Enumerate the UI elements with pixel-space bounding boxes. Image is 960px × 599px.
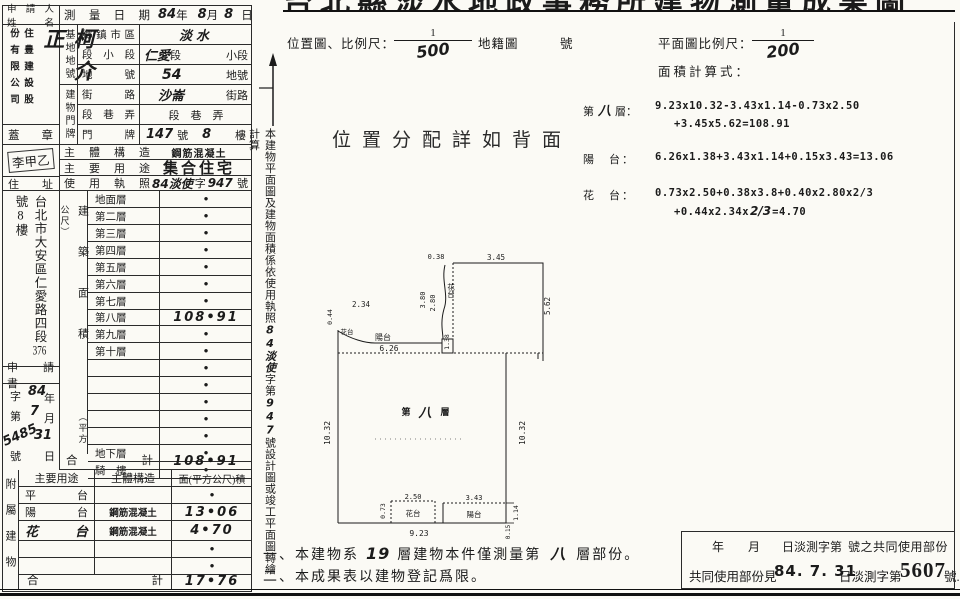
site-lot-unit: 地號 [226,67,248,83]
applicant-label-line1: 申請人 [7,1,54,15]
annex-total-row: 合 計 17•76 [19,574,252,589]
site-row1-label: 鄉鎮市區 [78,25,140,45]
door-row1-label-text: 街 路 [82,87,135,102]
survey-year: 84 [158,7,176,22]
annex-structure: 鋼筋混凝土 [95,521,172,540]
door-row3-label: 門 牌 [78,125,140,145]
floor-label-pre: 第 [401,406,410,418]
formula3-name: 花 台： [583,187,635,203]
floor-value: • [160,360,252,376]
site-section-unit: 段 [170,47,181,63]
annex-total-label: 合 計 [19,574,172,589]
survey-date-row: 測量日期 84 年 8 月 8 日 [60,5,252,25]
floor-total-label: 合 計 [60,454,160,469]
floor-area-strip: 建築面積 （平方公尺） [60,191,88,454]
application-doc-grid: 字 84 年 第 7 月 5485 31 號 日 [2,384,60,470]
dim-923: 9.23 [409,529,428,538]
dim-626: 6.26 [379,344,398,353]
formula1-pre: 第 [583,103,594,119]
license-row: 使用執照 84淡使 字 947 號 [60,176,252,191]
formula2-name: 陽 台： [583,151,635,167]
dim-038: 0.38 [428,253,445,261]
common-doc-number-unit: 號. [944,566,960,585]
site-subsection-unit: 小段 [226,47,248,63]
cadastral-map-label: 地籍圖 [478,33,519,52]
license-label: 使用執照 [64,175,150,191]
side-note-column: 本建物平面圖及建物面積係依使用執照84淡使字第947號設計圖或竣工平面圖轉繪計算 [253,128,270,580]
doc-no-word: 第 [10,408,21,424]
annex-use: 陽 台 [25,504,88,520]
seal-stamp-cell: 李甲乙 [2,145,60,176]
side-note-pre: 本建物平面圖及建物面積係依使用執照 [264,128,276,324]
common-month-label: 月 [748,538,760,555]
dim-015: 0.15 [505,524,512,539]
plan-scale-label: 平面圖比例尺： [658,33,753,52]
doc-word: 字 [10,388,21,404]
survey-day-unit: 日 [241,7,253,23]
annex-row: • [19,558,252,575]
note1-post: 層部份。 [576,544,640,564]
formula3-fraction-hw: 2/3 [750,204,771,218]
floor-label: 第十層 [88,343,160,359]
note-line2: 二、本成果表以建物登記爲限。 [263,566,487,586]
dim-073: 0.73 [379,503,387,519]
sheet-right-border [954,22,955,589]
floor-row: 第十層• [88,343,252,360]
annex-area: 4•70 [172,521,252,540]
dim-280: 2.80 [429,295,437,312]
dim-1032-right: 10.32 [518,421,527,445]
formula1-floor-hw: 八 [598,100,611,119]
floor-row: 第六層• [88,276,252,293]
formula3-line2-pre: +0.44x2.34x [674,206,749,218]
address-mid: 號 [14,195,28,209]
door-number-unit: 號 [177,127,188,143]
address-post: 樓 [14,224,28,238]
floor-value: • [160,326,252,342]
street-unit: 街路 [226,87,248,103]
annex-header-area-text: 面(平方公尺)積 [179,471,246,486]
flower-bed-label-bottom: 花台 [406,508,421,518]
doc-month-hw: 7 [30,404,39,419]
common-year-label: 年 [712,538,724,555]
common-doc-prefix: 日淡測字第 [782,538,842,555]
site-row1-label-text: 鄉鎮市區 [82,27,135,42]
door-row1-label: 街 路 [78,85,140,105]
seal-label-text: 蓋 章 [8,127,53,143]
floor-label-hw: 八 [417,406,432,421]
floor-value: • [160,293,252,309]
floor-row-eighth: 第八層108•91 [88,310,252,326]
floor-row: 第五層• [88,259,252,276]
site-row3-value: 54 地號 [140,65,252,85]
floor-value: • [160,377,252,393]
flower-bed-label-left: 花台 [341,327,354,336]
formula3-line2-result: =4.70 [772,206,806,218]
applicant-name-label: 申請人 姓 名 [2,5,60,25]
annex-header-use: 主要用途 [19,470,95,487]
formula3-line1: 0.73x2.50+0.38x3.8+0.40x2.80x2/3 [655,187,873,199]
floor-label [88,411,160,427]
annex-row: 花 台鋼筋混凝土4•70 [19,521,252,541]
floor-value: • [160,259,252,275]
location-map-label: 位置圖、比例尺： [287,33,395,52]
flower-bed-label-upper: 花台 [446,282,455,300]
door-row3-label-text: 門 牌 [82,127,135,142]
floor-row: 第四層• [88,242,252,259]
floor-value: • [160,276,252,292]
door-floor-unit: 樓 [235,127,246,143]
floor-label: 地面層 [88,191,160,207]
formula1-line2: +3.45x5.62=108.91 [674,118,790,130]
annex-structure [95,487,172,503]
annex-use: 平 台 [25,487,88,503]
floor-row: 地面層• [88,191,252,208]
license-hw-prefix: 84淡使 [152,175,193,192]
address-pre: 台北市大安區仁愛路四段 [33,195,47,344]
door-row2-label: 段巷弄 [78,105,140,125]
floor-label: 第三層 [88,225,160,241]
doc-serial-unit: 號 [10,448,21,464]
door-floor-number: 8 [202,127,211,142]
annex-structure [95,558,172,574]
annex-area: • [172,541,252,557]
address-number: 376 [33,344,47,357]
common-use-box: 年 月 日淡測字第 號之共同使用部份 共同使用部份見 84. 7. 31 日淡測… [681,531,955,589]
floor-plan-drawing: 3.45 0.38 5.62 3.80 2.80 花台 0.44 2.34 花台… [313,243,563,548]
survey-day: 8 [224,7,233,22]
floor-label [88,428,160,444]
site-row2-label-text: 段小段 [82,47,135,62]
annex-area: • [172,487,252,503]
structure-label: 主體構造 [64,144,150,160]
annex-area: • [172,558,252,574]
dim-044: 0.44 [326,309,334,325]
annex-header-structure: 主體構造 [95,470,172,487]
site-group-strip: 基地地號 [60,25,78,85]
formula3-line2: +0.44x2.34x 2/3 =4.70 [674,204,806,218]
floor-value: • [160,343,252,359]
floor-row: 第七層• [88,293,252,310]
site-row2-label: 段小段 [78,45,140,65]
north-arrow-icon [258,52,284,130]
annex-row: 平 台• [19,487,252,504]
door-row2-label-text: 段巷弄 [82,107,135,122]
dim-380: 3.80 [419,292,427,309]
floor-label [88,377,160,393]
floor-value: • [160,242,252,258]
dim-114: 1.14 [512,505,520,521]
address-label-text: 住 址 [8,176,53,192]
door-group-label: 建物門牌 [61,89,76,141]
floor-label: 第四層 [88,242,160,258]
common-doc-suffix: 號之共同使用部份 [848,538,948,555]
door-group-strip: 建物門牌 [60,85,78,145]
dim-562: 5.62 [543,297,552,315]
floor-row: • [88,411,252,428]
common-doc-prefix2: 日淡測字第 [839,566,902,585]
sheet-bottom-border [0,589,960,596]
door-row1-value: 沙崙 街路 [140,85,252,105]
license-word: 字 [195,175,206,191]
seal-label: 蓋 章 [2,125,60,145]
company-name-left-column: 份有限公司 [6,28,20,121]
annex-side-strip: 附屬建物 [2,470,19,589]
license-number: 947 [208,176,233,190]
door-number: 147 [146,127,173,142]
common-doc-number-stamp: 5607 [900,558,946,583]
floor-total-row: 合 計 108•91 [60,454,252,470]
dim-138: 1.38 [443,334,451,350]
note1-floor-hw: 八 [550,543,567,564]
floor-label-post: 層 [440,406,449,418]
floor-label: 第二層 [88,208,160,224]
dim-345: 3.45 [487,253,505,262]
survey-sheet: 台北縣淡水地政事務所建物測量成果圖 申請人 姓 名 份有限公司 住豊建設股 柯介… [0,0,960,599]
annex-header-structure-text: 主體構造 [111,470,155,486]
annex-structure [95,541,172,557]
floor-value: • [160,411,252,427]
cadastral-map-no: 號 [560,33,573,52]
floor-value: • [160,225,252,241]
dim-234: 2.34 [352,300,371,309]
seal-stamp: 李甲乙 [7,148,54,173]
section-lane-alley-blank: 段 巷 弄 [169,107,224,123]
formula1-line1: 9.23x10.32-3.43x1.14-0.73x2.50 [655,100,860,112]
note1-mid: 層建物本件僅測量第 [397,544,541,564]
floor-area-group-label: 建築面積 [77,205,89,369]
center-note: 位置分配詳如背面 [332,125,572,152]
floor-label: 第九層 [88,326,160,342]
survey-month-unit: 月 [207,7,219,23]
floor-row: • [88,428,252,445]
annex-header-use-text: 主要用途 [35,470,79,486]
side-note-license-prefix: 84淡使 [264,324,277,374]
site-section-value: 仁愛 [144,45,170,64]
doc-day-unit: 日 [44,448,55,464]
formula2-line1: 6.26x1.38+3.43x1.14+0.15x3.43=13.06 [655,151,894,163]
doc-day-hw: 31 [34,428,52,443]
survey-year-unit: 年 [176,7,188,23]
floor-label [88,360,160,376]
annex-structure: 鋼筋混凝土 [95,504,172,520]
annex-side-label: 附屬建物 [2,478,18,582]
formula1-post: 層： [615,103,637,119]
floor-row: • [88,360,252,377]
note-line1: 一、本建物系 19 層建物本件僅測量第 八 層部份。 [263,543,640,564]
site-row1-value: 淡水 [140,25,252,45]
doc-year-unit: 年 [44,390,55,406]
floor-label [88,394,160,410]
site-district-value: 淡水 [179,25,213,44]
survey-date-label: 測量日期 [64,7,150,23]
floor-value: • [160,191,252,207]
dim-343: 3.43 [466,494,483,502]
area-formula-label: 面積計算式： [658,61,751,80]
floor-row: • [88,377,252,394]
balcony-label-upper: 陽台 [375,332,391,342]
applicant-name-cell: 份有限公司 住豊建設股 柯介正 [2,25,60,125]
site-row2-value: 仁愛 段 小段 [140,45,252,65]
floor-table: 地面層• 第二層• 第三層• 第四層• 第五層• 第六層• 第七層• 第八層10… [88,191,252,454]
plan-scale-fraction: 1 200 [752,26,814,60]
door-row2-value: 段 巷 弄 [140,105,252,125]
floor-value-eighth: 108•91 [160,310,252,325]
annex-total-value: 17•76 [185,574,240,589]
balcony-label-bottom: 陽台 [467,509,482,519]
side-note-license-number: 947 [264,397,277,438]
note1-storeys-hw: 19 [366,544,390,563]
application-doc-header: 申 請 書 [2,366,60,384]
door-row3-value: 147 號 8 樓 [140,125,252,145]
survey-month: 8 [198,7,207,22]
annex-use-handwritten: 花 台 [25,521,88,540]
floor-row: 第三層• [88,225,252,242]
floor-row: 第二層• [88,208,252,225]
floor-value: • [160,394,252,410]
sheet-title-clip: 台北縣淡水地政事務所建物測量成果圖 [283,0,955,12]
floor-total-value: 108•91 [173,454,239,469]
street-name: 沙崙 [158,85,184,104]
floor-row: 第九層• [88,326,252,343]
floor-label: 第七層 [88,293,160,309]
note1-pre: 一、本建物系 [263,544,359,564]
annex-area: 13•06 [172,504,252,520]
dim-250: 2.50 [405,493,422,501]
address-label: 住 址 [2,176,60,191]
floor-label: 第八層 [88,310,160,325]
annex-header-area: 面(平方公尺)積 [172,470,252,487]
usage-label: 主要用途 [64,160,150,176]
sheet-title: 台北縣淡水地政事務所建物測量成果圖 [283,0,912,12]
site-group-label: 基地地號 [61,29,76,81]
floor-row: • [88,394,252,411]
annex-rows: 平 台• 陽 台鋼筋混凝土13•06 花 台鋼筋混凝土4•70 • • [19,487,252,574]
site-row3-label: 地 號 [78,65,140,85]
formula1-name: 第 八 層： [583,100,637,119]
side-note-mid: 字第 [264,374,276,397]
common-see-label: 共同使用部份見 [689,566,777,585]
company-name-right-column: 住豊建設股 [20,28,34,121]
site-lot-number: 54 [162,67,181,83]
floor-label: 第六層 [88,276,160,292]
site-row3-label-text: 地 號 [82,67,135,82]
floor-value: • [160,428,252,444]
annex-row: • [19,541,252,558]
plan-scale-denominator: 200 [751,37,815,63]
location-scale-fraction: 1 500 [394,26,472,60]
floor-label: 第五層 [88,259,160,275]
applicant-address: 台北市大安區仁愛路四段376號8樓 [2,191,60,366]
dim-1032-left: 10.32 [323,421,332,445]
floor-value: • [160,208,252,224]
annex-row: 陽 台鋼筋混凝土13•06 [19,504,252,521]
doc-month-unit: 月 [44,410,55,426]
address-floor-number: 8 [14,209,28,224]
